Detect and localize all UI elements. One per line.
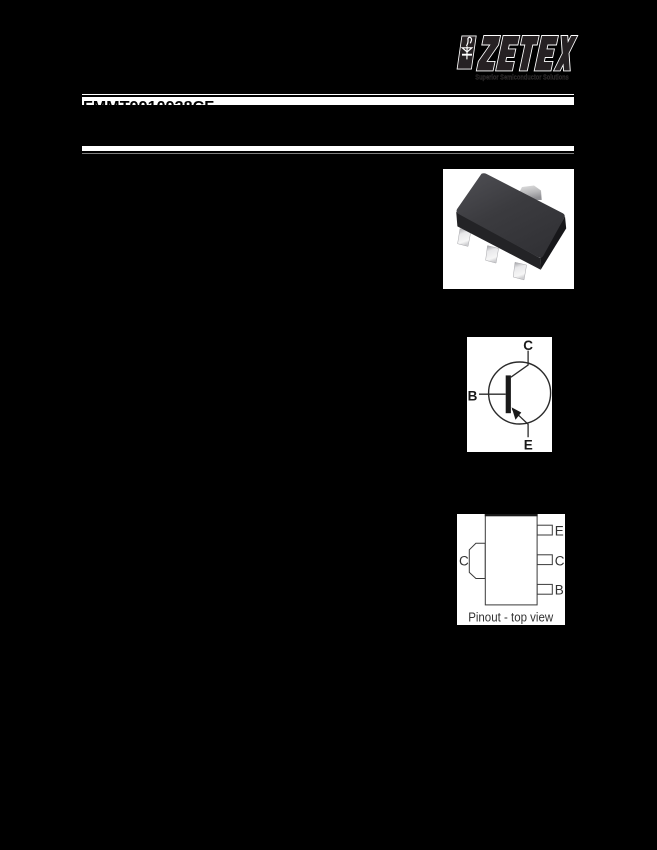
svg-text:Superior Semiconductor Solutio: Superior Semiconductor Solutions xyxy=(475,73,569,82)
svg-text:C: C xyxy=(459,553,469,568)
svg-text:C: C xyxy=(523,338,533,353)
svg-text:Pinout - top view: Pinout - top view xyxy=(468,610,554,624)
svg-text:B: B xyxy=(468,388,478,403)
svg-text:B: B xyxy=(555,583,564,598)
svg-text:C: C xyxy=(555,553,565,568)
svg-text:E: E xyxy=(524,437,533,452)
svg-text:E: E xyxy=(555,523,564,538)
